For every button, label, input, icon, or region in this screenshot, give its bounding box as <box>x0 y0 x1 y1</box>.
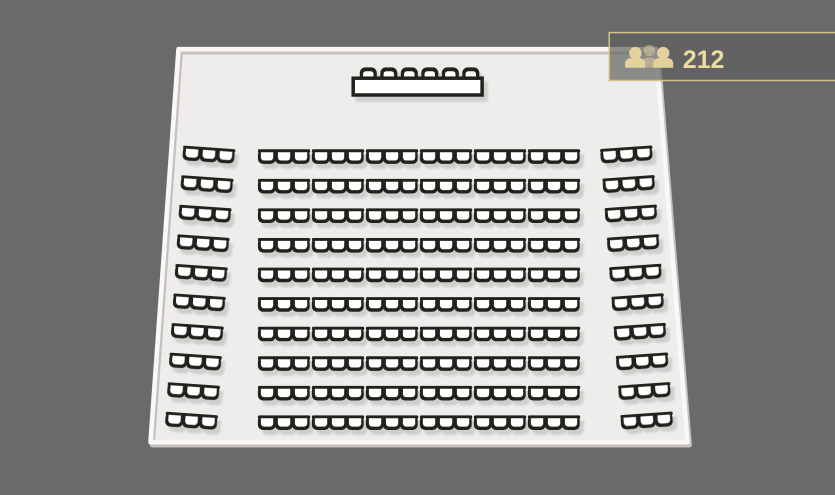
svg-text:212: 212 <box>683 46 725 74</box>
